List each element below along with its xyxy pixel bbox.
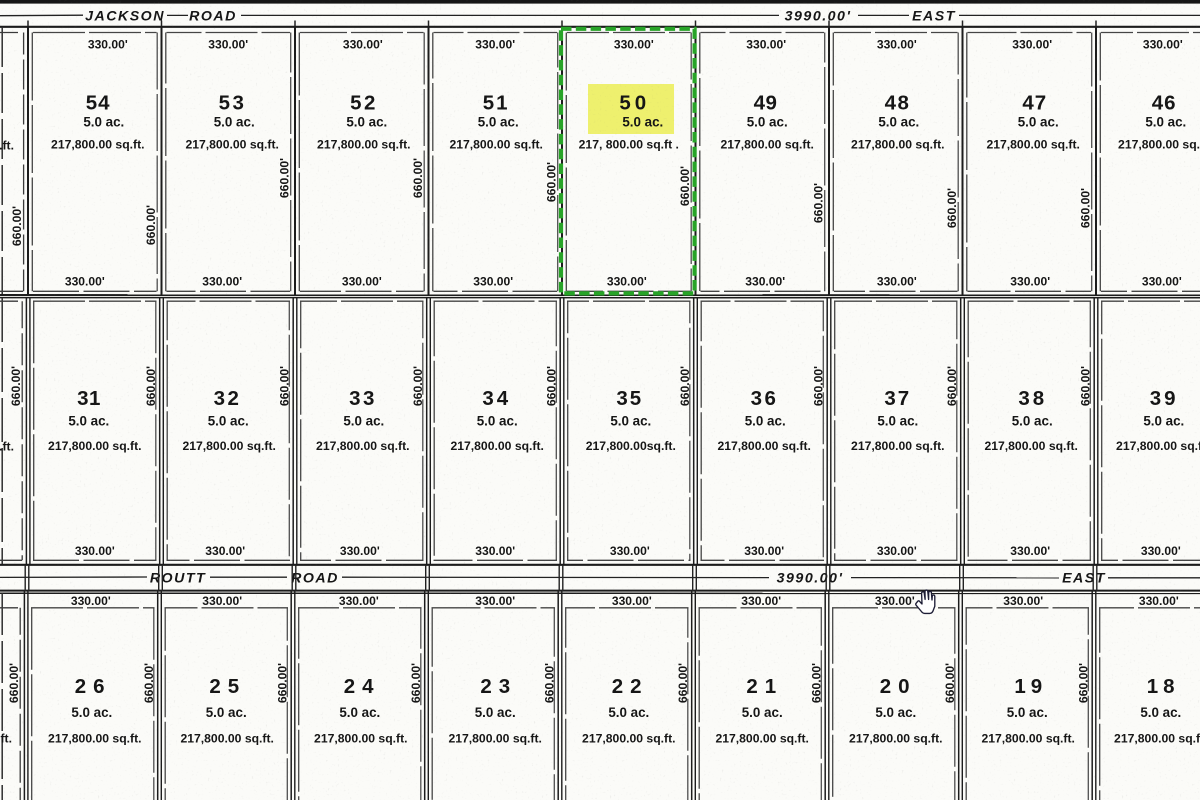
- svg-text:53: 53: [219, 92, 247, 115]
- svg-text:46: 46: [1152, 92, 1177, 115]
- svg-text:5.0 ac.: 5.0 ac.: [71, 705, 112, 720]
- svg-text:217,800.00 sq.ft.: 217,800.00 sq.ft.: [185, 138, 279, 152]
- svg-text:5.0 ac.: 5.0 ac.: [742, 705, 783, 720]
- svg-text:660.00': 660.00': [276, 663, 290, 703]
- svg-text:330.00': 330.00': [741, 594, 781, 608]
- svg-text:37: 37: [884, 387, 911, 410]
- svg-text:217,800.00 sq.ft.: 217,800.00 sq.ft.: [1118, 138, 1200, 152]
- svg-text:217,800.00 sq.ft.: 217,800.00 sq.ft.: [0, 732, 12, 746]
- svg-text:26: 26: [75, 675, 112, 698]
- svg-text:3990.00': 3990.00': [777, 571, 844, 587]
- svg-text:330.00': 330.00': [208, 37, 248, 51]
- svg-text:217,800.00 sq.ft.: 217,800.00 sq.ft.: [0, 139, 14, 153]
- svg-text:5.0 ac.: 5.0 ac.: [477, 414, 518, 429]
- svg-text:660.00': 660.00': [142, 663, 156, 703]
- svg-text:660.00': 660.00': [943, 663, 957, 703]
- svg-text:330.00': 330.00': [205, 544, 245, 558]
- svg-text:217,800.00 sq.ft.: 217,800.00 sq.ft.: [450, 439, 544, 453]
- svg-text:217,800.00 sq.ft.: 217,800.00 sq.ft.: [48, 439, 142, 453]
- svg-text:330.00': 330.00': [75, 544, 115, 558]
- svg-text:35: 35: [616, 387, 643, 410]
- svg-text:330.00': 330.00': [1003, 594, 1043, 608]
- svg-text:5.0 ac.: 5.0 ac.: [622, 115, 663, 130]
- svg-text:217,800.00 sq.ft.: 217,800.00 sq.ft.: [449, 138, 543, 152]
- svg-text:18: 18: [1147, 675, 1180, 698]
- svg-text:330.00': 330.00': [342, 275, 382, 289]
- svg-text:217,800.00 sq.ft.: 217,800.00 sq.ft.: [849, 732, 943, 746]
- svg-text:330.00': 330.00': [1010, 275, 1050, 289]
- svg-text:24: 24: [344, 675, 381, 698]
- svg-text:330.00': 330.00': [343, 37, 383, 51]
- svg-text:36: 36: [751, 387, 779, 410]
- svg-text:217,800.00 sq.ft.: 217,800.00 sq.ft.: [981, 732, 1075, 746]
- svg-text:5.0 ac.: 5.0 ac.: [343, 414, 384, 429]
- svg-text:660.00': 660.00': [144, 366, 158, 406]
- svg-text:660.00': 660.00': [1079, 366, 1093, 406]
- svg-text:660.00': 660.00': [812, 366, 826, 406]
- svg-text:660.00': 660.00': [411, 158, 425, 198]
- svg-text:330.00': 330.00': [614, 37, 654, 51]
- svg-text:39: 39: [1150, 387, 1179, 410]
- svg-text:217,800.00sq.ft.: 217,800.00sq.ft.: [586, 439, 676, 453]
- svg-text:5.0 ac.: 5.0 ac.: [478, 115, 519, 130]
- svg-text:5.0 ac.: 5.0 ac.: [745, 414, 786, 429]
- svg-text:330.00': 330.00': [1139, 594, 1179, 608]
- svg-text:5.0 ac.: 5.0 ac.: [68, 414, 109, 429]
- svg-text:5.0 ac.: 5.0 ac.: [610, 414, 651, 429]
- svg-text:660.00': 660.00': [678, 166, 692, 206]
- svg-text:330.00': 330.00': [202, 275, 242, 289]
- svg-text:5.0 ac.: 5.0 ac.: [1145, 115, 1186, 130]
- svg-text:330.00': 330.00': [746, 37, 786, 51]
- svg-text:330.00': 330.00': [1141, 544, 1181, 558]
- svg-text:660.00': 660.00': [411, 366, 425, 406]
- svg-text:217,800.00 sq.ft.: 217,800.00 sq.ft.: [180, 732, 274, 746]
- svg-text:217,800.00 sq.ft.: 217,800.00 sq.ft.: [851, 138, 945, 152]
- svg-text:5.0 ac.: 5.0 ac.: [878, 115, 919, 130]
- svg-text:32: 32: [214, 387, 242, 410]
- svg-text:49: 49: [754, 92, 778, 115]
- svg-text:EAST: EAST: [1062, 571, 1106, 587]
- svg-text:217,800.00 sq.ft.: 217,800.00 sq.ft.: [182, 439, 276, 453]
- svg-text:ROAD: ROAD: [189, 9, 237, 25]
- svg-text:23: 23: [480, 675, 517, 698]
- svg-text:217,800.00 sq.ft.: 217,800.00 sq.ft.: [1116, 439, 1200, 453]
- svg-text:330.00': 330.00': [1142, 275, 1182, 289]
- svg-text:330.00': 330.00': [65, 275, 105, 289]
- svg-text:660.00': 660.00': [1077, 663, 1091, 703]
- svg-text:660.00': 660.00': [9, 366, 23, 406]
- svg-text:51: 51: [483, 92, 510, 115]
- svg-text:217,800.00 sq.ft.: 217,800.00 sq.ft.: [851, 439, 945, 453]
- svg-text:217,800.00 sq.ft.: 217,800.00 sq.ft.: [51, 138, 145, 152]
- svg-text:330.00': 330.00': [877, 37, 917, 51]
- svg-text:660.00': 660.00': [945, 366, 959, 406]
- svg-text:50: 50: [619, 92, 650, 115]
- svg-text:5.0 ac.: 5.0 ac.: [214, 115, 255, 130]
- svg-text:52: 52: [350, 92, 378, 115]
- svg-text:217,800.00 sq.ft.: 217,800.00 sq.ft.: [984, 439, 1078, 453]
- svg-text:660.00': 660.00': [543, 663, 557, 703]
- svg-text:330.00': 330.00': [877, 544, 917, 558]
- svg-text:34: 34: [482, 387, 511, 410]
- svg-text:217, 800.00 sq.ft .: 217, 800.00 sq.ft .: [579, 138, 679, 152]
- svg-text:5.0 ac.: 5.0 ac.: [1140, 705, 1181, 720]
- svg-text:330.00': 330.00': [744, 544, 784, 558]
- svg-text:22: 22: [612, 675, 649, 698]
- svg-text:330.00': 330.00': [1143, 37, 1183, 51]
- svg-text:330.00': 330.00': [607, 275, 647, 289]
- svg-text:19: 19: [1014, 675, 1047, 698]
- svg-text:5.0 ac.: 5.0 ac.: [206, 705, 247, 720]
- svg-text:38: 38: [1018, 387, 1047, 410]
- svg-text:660.00': 660.00': [278, 158, 292, 198]
- svg-text:660.00': 660.00': [812, 183, 826, 223]
- svg-text:217,800.00 sq.ft.: 217,800.00 sq.ft.: [986, 138, 1080, 152]
- svg-text:217,800.00 sq.ft.: 217,800.00 sq.ft.: [316, 439, 410, 453]
- svg-text:660.00': 660.00': [7, 663, 21, 703]
- svg-text:330.00': 330.00': [475, 37, 515, 51]
- svg-text:217,800.00 sq.ft.: 217,800.00 sq.ft.: [582, 732, 676, 746]
- svg-text:660.00': 660.00': [678, 366, 692, 406]
- svg-text:330.00': 330.00': [610, 544, 650, 558]
- svg-text:217,800.00 sq.ft.: 217,800.00 sq.ft.: [448, 732, 542, 746]
- svg-text:330.00': 330.00': [475, 594, 515, 608]
- svg-text:217,800.00 sq.ft.: 217,800.00 sq.ft.: [0, 440, 14, 454]
- svg-text:25: 25: [209, 675, 246, 698]
- svg-text:217,800.00 sq.ft.: 217,800.00 sq.ft.: [715, 732, 809, 746]
- svg-text:5.0 ac.: 5.0 ac.: [1018, 115, 1059, 130]
- svg-text:330.00': 330.00': [71, 594, 111, 608]
- svg-text:217,800.00 sq.ft.: 217,800.00 sq.ft.: [48, 732, 142, 746]
- svg-text:5.0 ac.: 5.0 ac.: [346, 115, 387, 130]
- svg-text:660.00': 660.00': [409, 663, 423, 703]
- svg-text:33: 33: [349, 387, 377, 410]
- svg-text:54: 54: [86, 92, 111, 115]
- svg-text:ROAD: ROAD: [291, 571, 339, 587]
- svg-text:217,800.00 sq.ft.: 217,800.00 sq.ft.: [717, 439, 811, 453]
- svg-text:330.00': 330.00': [612, 594, 652, 608]
- svg-text:3990.00': 3990.00': [785, 9, 852, 25]
- svg-text:47: 47: [1022, 92, 1047, 115]
- svg-text:5.0 ac.: 5.0 ac.: [877, 414, 918, 429]
- svg-text:330.00': 330.00': [1012, 37, 1052, 51]
- svg-text:217,800.00 sq.ft.: 217,800.00 sq.ft.: [314, 732, 408, 746]
- svg-text:5.0 ac.: 5.0 ac.: [875, 705, 916, 720]
- svg-text:5.0 ac.: 5.0 ac.: [608, 705, 649, 720]
- svg-text:330.00': 330.00': [875, 594, 915, 608]
- svg-text:EAST: EAST: [912, 9, 956, 25]
- svg-text:330.00': 330.00': [877, 275, 917, 289]
- svg-text:5.0 ac.: 5.0 ac.: [747, 115, 788, 130]
- svg-text:330.00': 330.00': [745, 275, 785, 289]
- svg-text:660.00': 660.00': [278, 366, 292, 406]
- svg-text:48: 48: [885, 92, 911, 115]
- svg-text:217,800.00 sq.ft.: 217,800.00 sq.ft.: [317, 138, 411, 152]
- svg-text:660.00': 660.00': [1079, 188, 1093, 228]
- svg-text:5.0 ac.: 5.0 ac.: [339, 705, 380, 720]
- svg-text:217,800.00 sq.ft.: 217,800.00 sq.ft.: [1114, 732, 1200, 746]
- svg-text:5.0 ac.: 5.0 ac.: [208, 414, 249, 429]
- svg-text:660.00': 660.00': [676, 663, 690, 703]
- svg-text:20: 20: [880, 675, 917, 698]
- svg-text:660.00': 660.00': [810, 663, 824, 703]
- svg-text:330.00': 330.00': [473, 275, 513, 289]
- svg-text:330.00': 330.00': [340, 544, 380, 558]
- svg-text:660.00': 660.00': [545, 366, 559, 406]
- svg-text:JACKSON: JACKSON: [85, 9, 165, 25]
- svg-text:31: 31: [77, 387, 101, 410]
- svg-text:330.00': 330.00': [202, 594, 242, 608]
- svg-text:5.0 ac.: 5.0 ac.: [475, 705, 516, 720]
- svg-text:660.00': 660.00': [945, 188, 959, 228]
- svg-text:660.00': 660.00': [545, 162, 559, 202]
- svg-text:21: 21: [746, 675, 783, 698]
- svg-text:5.0 ac.: 5.0 ac.: [1143, 414, 1184, 429]
- svg-text:217,800.00 sq.ft.: 217,800.00 sq.ft.: [720, 138, 814, 152]
- svg-text:330.00': 330.00': [475, 544, 515, 558]
- svg-text:5.0 ac.: 5.0 ac.: [1007, 705, 1048, 720]
- svg-text:660.00': 660.00': [144, 205, 158, 245]
- svg-text:330.00': 330.00': [88, 37, 128, 51]
- svg-text:5.0 ac.: 5.0 ac.: [83, 115, 124, 130]
- svg-text:330.00': 330.00': [1010, 544, 1050, 558]
- svg-text:330.00': 330.00': [339, 594, 379, 608]
- svg-text:660.00': 660.00': [10, 206, 24, 246]
- svg-text:5.0 ac.: 5.0 ac.: [1012, 414, 1053, 429]
